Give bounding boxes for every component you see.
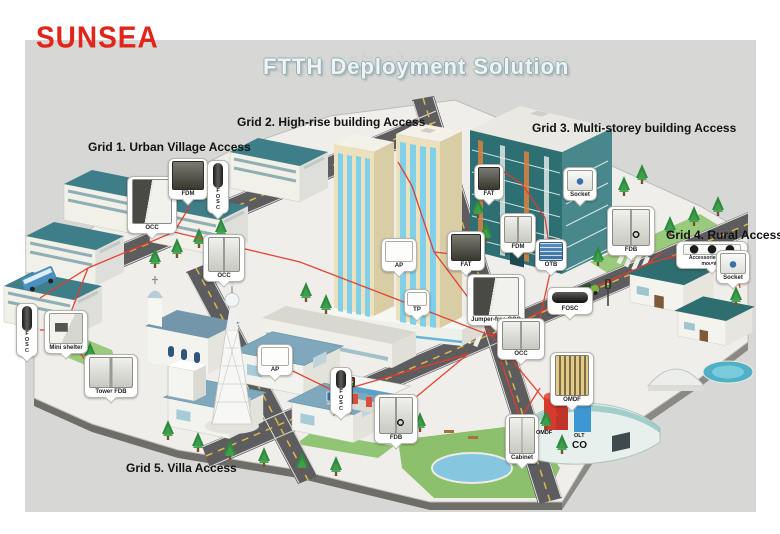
callout-fat-multistorey: FAT [474, 164, 504, 200]
mini-shelter-box [168, 360, 206, 401]
cabinet-icon [509, 417, 535, 454]
callout-label: FDB [625, 247, 637, 254]
callout-label: Socket [570, 192, 590, 199]
page-title: FTTH Deployment Solution [263, 54, 569, 80]
callout-label: AP [271, 367, 279, 374]
callout-cabinet: Cabinet [505, 414, 539, 464]
callout-label: TP [413, 307, 421, 314]
callout-mini-shelter: Mini shelter [44, 310, 88, 354]
ftth-deployment-diagram: SUNSEA FTTH Deployment Solution FTTH Dep… [0, 0, 780, 534]
callout-fosc-villa: FOSC [330, 367, 352, 415]
callout-label: Mini shelter [49, 345, 82, 352]
omdf-cylinder-label: OMDF [536, 430, 552, 436]
grid1-label: Grid 1. Urban Village Access [88, 140, 251, 154]
callout-fat-highrise: FAT [447, 231, 485, 271]
co-label: CO [572, 440, 587, 451]
omdf-frame-icon [555, 355, 590, 396]
callout-fdm-grid1: FDM [168, 158, 208, 200]
callout-otb: OTB [535, 239, 567, 271]
mini-shelter-icon [49, 313, 84, 344]
callout-fdb-rural: FDB [607, 206, 655, 256]
callout-label: Cabinet [511, 455, 533, 462]
olt-cylinder-label: OLT [574, 433, 585, 439]
callout-label: FOSC [338, 390, 345, 413]
fosc-closure-icon [22, 306, 32, 331]
callout-occ-street: OCC [203, 234, 245, 282]
callout-omdf: OMDF [550, 352, 594, 406]
callout-label: FAT [484, 191, 495, 198]
fdb-cabinet-icon [612, 209, 650, 246]
otb-icon [539, 242, 563, 261]
fat-device-icon [478, 167, 501, 190]
callout-fosc-left: FOSC [16, 303, 38, 357]
fosc-closure-icon [336, 370, 346, 389]
ap-box-icon [261, 347, 289, 366]
callout-label: FOSC [215, 189, 222, 212]
fosc-closure-icon [213, 163, 223, 188]
callout-label: Socket [723, 275, 743, 282]
fdm-cabinet-icon [504, 216, 532, 243]
fdb-cabinet-icon [379, 397, 414, 434]
callout-fosc-street: FOSC [547, 287, 593, 315]
callout-label: OCC [514, 351, 527, 358]
callout-fdm-street: FDM [500, 213, 536, 253]
callout-label: FOSC [24, 332, 31, 355]
tower-fdb-icon [89, 357, 132, 388]
callout-tower-fdb: Tower FDB [84, 354, 138, 398]
fosc-closure-icon [552, 292, 588, 303]
callout-label: FDM [512, 244, 525, 251]
sunsea-logo: SUNSEA [36, 21, 159, 56]
olt-cylinder [574, 404, 591, 432]
callout-ap-villa: AP [257, 344, 293, 376]
callout-socket-multistorey: Socket [563, 167, 597, 201]
callout-tp: TP [404, 289, 430, 316]
callout-label: FDM [182, 191, 195, 198]
fdm-device-icon [172, 161, 203, 190]
tp-box-icon [407, 292, 426, 306]
occ-cabinet-icon [502, 321, 540, 350]
callout-occ-crossing: OCC [497, 318, 545, 360]
grid5-label: Grid 5. Villa Access [126, 461, 237, 475]
callout-label: FAT [461, 262, 472, 269]
callout-label: AP [395, 263, 403, 270]
callout-fdb-villa: FDB [374, 394, 418, 444]
occ-cabinet-icon [132, 179, 172, 224]
socket-icon [720, 253, 746, 274]
jumper-free-occ-icon [473, 277, 520, 316]
pond [432, 453, 512, 483]
callout-label: FOSC [562, 306, 579, 313]
callout-ap-highrise: AP [381, 238, 417, 272]
grid3-label: Grid 3. Multi-storey building Access [532, 121, 736, 135]
socket-icon [567, 170, 593, 191]
callout-label: Tower FDB [95, 389, 126, 396]
occ-cabinet-icon [208, 237, 241, 272]
grid4-label: Grid 4. Rural Access [666, 228, 780, 242]
grid2-label: Grid 2. High-rise building Access [237, 115, 425, 129]
callout-label: OMDF [563, 397, 581, 404]
callout-socket-rural: Socket [716, 250, 750, 284]
callout-label: OTB [545, 262, 558, 269]
callout-fosc-grid1: FOSC [207, 160, 229, 214]
callout-label: OCC [145, 225, 158, 232]
callout-label: OCC [217, 273, 230, 280]
callout-label: FDB [390, 435, 402, 442]
fat-device-icon [451, 234, 481, 261]
ap-box-icon [385, 241, 413, 262]
